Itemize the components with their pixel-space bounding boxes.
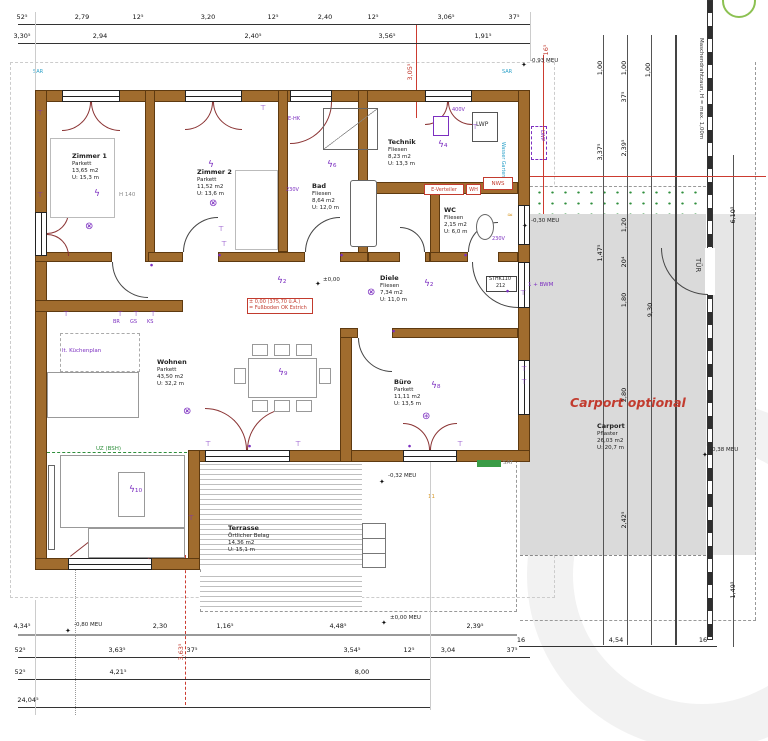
terrace-door-wohnen[interactable] [205,450,290,462]
room-perimeter: U: 6,0 m [444,229,467,235]
nws-box: NWS [483,177,513,190]
wh-box: WH [466,184,481,195]
room-name: WC [444,206,456,214]
dimension-label: 4,21⁵ [109,668,126,676]
dimension-label: 2,40 [318,13,332,21]
wall-niche-south-2 [425,252,430,262]
bolt-icon-2: ϟ₂ [277,277,287,286]
dimension-label: 1,16⁵ [216,622,233,630]
dimension-label: 2,42⁵ [620,511,628,528]
socket-icon: ⊤ [521,366,527,373]
socket-icon: ⊤ [295,441,301,448]
socket-icon: ⊤ [218,226,224,233]
chair [296,344,312,356]
dimension-label: 16 [517,636,525,644]
dimension-label: 1,20 [620,218,628,232]
room-name: Wohnen [157,358,187,366]
room-label-wc: WC Fliesen 2,15 m2 U: 6,0 m [444,206,467,236]
orange-wave-mark: ≈ [507,212,513,220]
room-label-diele: Diele Fliesen 7,34 m2 U: 11,0 m [380,274,407,304]
chair [296,400,312,412]
bolt-icon-4: ϟ₄ [438,141,448,150]
terrace-door-buero[interactable] [403,450,457,462]
room-area: 26,03 m2 [597,438,623,444]
gate-tuer-label: TÜR [693,258,701,272]
dimension-label: 3,30⁵ [13,32,30,40]
switch-dot-icon: ● [340,254,343,258]
terrace-decking-lower [200,572,362,608]
sat-label: SAT [503,460,513,466]
dimension-label: 16 [699,636,707,644]
room-floor: Fliesen [312,191,331,197]
dimension-label: 1,00 [596,61,604,75]
chair [234,368,246,384]
carport-line-1 [603,35,604,645]
room-floor: Pflaster [597,431,618,437]
room-area: 11,52 m2 [197,184,223,190]
dimension-label: 12⁵ [404,646,415,654]
dimension-label: 3,20 [201,13,215,21]
dimension-label: 2,30 [153,622,167,630]
guide-line [530,12,531,60]
lift-slide-door-hst[interactable] [68,558,152,570]
room-perimeter: U: 15,3 m [72,175,99,181]
wall-hall-2 [148,252,183,262]
wall-wc-south-2 [498,252,518,262]
socket-icon: ⊤ [457,441,463,448]
dimension-label: 37⁵ [620,92,628,103]
kitchen-counter [47,372,139,418]
socket-icon: ⊤ [117,311,123,318]
red-dashed-bottom [185,555,186,705]
dimension-label: 6,10⁵ [729,206,737,223]
switch-dot-icon: ● [248,445,251,449]
bolt-icon-8: ϟ₈ [431,382,441,391]
room-name: Terrasse [228,524,259,532]
switch-dot-icon: ● [218,254,221,258]
elevation-marker-icon: ✦ [702,452,708,459]
switch-dot-icon: ● [506,290,509,294]
dimension-label: 4,54 [609,636,623,644]
elevation-text: -0,32 MEU [388,473,416,479]
room-area: 14,36 m2 [228,540,254,546]
dimension-label: 3,56⁵ [378,32,395,40]
socket-icon: ⊤ [150,311,156,318]
gs-label: GS [130,320,137,326]
v400-label: 400V [452,108,465,114]
dimension-label-red: 3,63⁵ [177,643,185,660]
room-area: 13,65 m2 [72,168,98,174]
room-name: Diele [380,274,399,282]
red-line-horizontal [530,176,766,177]
room-floor: Parkett [157,367,176,373]
wasser-garten-label: Wasser Garten [500,142,505,177]
wardrobe-zimmer2 [235,170,278,250]
room-area: 2,15 m2 [444,222,467,228]
window-bad-north [290,90,332,102]
room-floor: Fliesen [388,147,407,153]
wall-wc-south-1 [430,252,468,262]
elevation-text: -0,80 MEU [74,622,102,628]
dimension-label: 2,80 [620,388,628,402]
wall-niche-south-1 [368,252,400,262]
room-label-zimmer2: Zimmer 2 Parkett 11,52 m2 U: 13,6 m [197,168,232,198]
elevation-marker-icon: ✦ [521,62,527,69]
room-floor: Fliesen [444,215,463,221]
elevation-marker-icon: ✦ [381,620,387,627]
room-perimeter: U: 11,0 m [380,297,407,303]
room-name: Büro [394,378,411,386]
room-label-bad: Bad Fliesen 8,64 m2 U: 12,0 m [312,182,339,212]
room-floor: Parkett [394,387,413,393]
dimension-label: 3,54⁵ [343,646,360,654]
window-zimmer2-north [185,90,242,102]
dimension-label: 4,48⁵ [329,622,346,630]
guide-line-dotted [75,570,76,715]
chair [274,344,290,356]
room-area: 8,23 m2 [388,154,411,160]
socket-icon: ⊤ [472,124,478,131]
shower-cabin [350,180,377,247]
dimension-label: 37⁵ [509,13,520,21]
dimension-label: 20⁴ [620,257,628,268]
room-name: Bad [312,182,326,190]
dimension-label: 37⁵ [507,646,518,654]
window-technik-north [425,90,472,102]
switch-dot-icon: ● [464,254,467,258]
dimension-label: 24,04⁵ [17,696,38,704]
br-label: BR [113,320,120,326]
sofa-chaise [88,528,185,558]
wall-ext-east [188,450,200,570]
wall-wohnen-buero [340,330,352,462]
wall-buero-north-1 [340,328,358,338]
socket-icon: ⊤ [37,192,43,199]
washer-technik [433,116,449,136]
dimension-label: 1,00 [620,61,628,75]
elevation-text: ±0,00 MEU [390,615,421,621]
room-name: Zimmer 2 [197,168,232,176]
room-area: 8,64 m2 [312,198,335,204]
wall-hall-3 [218,252,305,262]
e-verteiler-box: E-Verteiler [424,184,464,195]
room-perimeter: U: 13,6 m [197,191,224,197]
dimension-label: 3,63⁵ [108,646,125,654]
room-area: 11,11 m2 [394,394,420,400]
room-perimeter: U: 32,2 m [157,381,184,387]
elevation-text: -0,38 MEU [710,447,738,453]
room-floor: Parkett [197,177,216,183]
dimension-label: 52⁵ [15,646,26,654]
planting-strip [520,186,706,216]
room-floor: Parkett [72,161,91,167]
elevation-marker-icon: ✦ [522,223,528,230]
ehk-label: E-HK [288,117,300,123]
wall-hall-4 [340,252,368,262]
fence-label: Maschendrahtzaun, H = max. 1,00m [698,38,704,139]
room-name: Zimmer 1 [72,152,107,160]
sthk-line2: 212 [496,284,505,289]
shower-bad [323,108,378,150]
dimension-label: 1,00 [644,63,652,77]
elevation-marker-icon: ✦ [65,628,71,635]
dimension-label: 2,39⁵ [620,139,628,156]
carport-line-3 [651,35,652,645]
room-name: Carport [597,422,625,430]
dimension-label: 2,40⁵ [244,32,261,40]
socket-icon: ⊤ [221,241,227,248]
bolt-icon: ϟ [94,190,100,199]
chair [252,344,268,356]
socket-icon: ⊤ [205,441,211,448]
sar-label-east: SAR [502,70,512,76]
socket-icon: ⊤ [521,379,527,386]
fan-lamp-icon: ⊛ [422,412,430,422]
wall-kitchen-north [35,300,183,312]
level-zero-marker: ✦ [315,281,321,288]
guide-line [430,462,431,710]
room-perimeter: U: 15,1 m [228,547,255,553]
switch-dot-icon: ● [150,264,153,268]
carport-line-4 [675,35,677,645]
dimension-label: 52⁵ [15,668,26,676]
dimension-label: 8,00 [355,668,369,676]
uz-beam-line [47,452,187,453]
bwm-label: 1 + BWM [528,282,553,288]
dimension-label: 12⁵ [368,13,379,21]
room-label-buero: Büro Parkett 11,11 m2 U: 13,5 m [394,378,421,408]
room-floor: Fliesen [380,283,399,289]
bolt-icon-6: ϟ₆ [327,161,337,170]
dimension-label: 3,06⁵ [437,13,454,21]
kitchen-note: lt. Küchenplan [62,348,101,354]
elevation-text: -0,93 MEU [530,58,558,64]
right-dim-line [733,155,734,647]
fence-bar [707,0,713,640]
dimension-label: 1,91⁵ [474,32,491,40]
chair [319,368,331,384]
dimension-label: 2,94 [93,32,107,40]
dim-line-bottom-1 [18,634,517,636]
guide-line [35,12,36,90]
ceiling-lamp-icon: ⊗ [85,222,93,232]
dim-line-bottom-3 [18,679,430,680]
carport-bottom-dashed [520,555,706,556]
chair [274,400,290,412]
dimension-label: 2,39⁵ [466,622,483,630]
room-perimeter: U: 20,7 m [597,445,624,451]
window-zimmer1-west [35,212,47,256]
level-line-2: = Fußboden OK Estrich [249,305,307,311]
dimension-label: 37⁵ [187,646,198,654]
bolt-icon-9: ϟ₉ [278,369,288,378]
socket-icon: ⊤ [63,311,69,318]
dimension-label: 1,80 [620,293,628,307]
room-area: 43,50 m2 [157,374,183,380]
site-boundary-dashed-bottom [520,620,756,621]
elevation-text: -0,30 MEU [531,218,559,224]
dim-line-top-2 [18,43,530,44]
elevation-marker-icon: ✦ [379,479,385,486]
dim-line-bottom-4 [18,707,430,708]
v230-wc-label: 230V [492,237,505,243]
dimension-label: 52⁵ [17,13,28,21]
room-perimeter: U: 13,3 m [388,161,415,167]
switch-dot-icon: ● [392,330,395,334]
v230-bad-label: 230V [286,188,299,194]
window-zimmer1-north [62,90,120,102]
room-label-terrasse: Terrasse Örtlicher Belag 14,36 m2 U: 15,… [228,524,269,554]
socket-icon: ⊤ [133,311,139,318]
ceiling-lamp-icon: ⊗ [183,407,191,417]
socket-icon: ⊤ [260,105,266,112]
bolt-icon: ϟ [208,161,214,170]
tv-board [48,465,55,550]
dining-table [248,358,317,398]
logo-arc [722,0,756,18]
dimension-label-red: 3,05⁵ [406,63,414,80]
terrace-steps [362,523,386,568]
floorplan-canvas: TÜR Maschendrahtzaun, H = max. 1,00m [0,0,768,741]
level-reference-box: ± 0,00 (375,70 ü.A.) = Fußboden OK Estri… [247,298,313,314]
room-name: Technik [388,138,416,146]
dimension-label: 12⁵ [268,13,279,21]
dim-line-bottom-2 [18,657,530,658]
chair [252,400,268,412]
dimension-label: 4,34⁵ [13,622,30,630]
wall-zimmer2-east [278,90,288,252]
room-label-wohnen: Wohnen Parkett 43,50 m2 U: 32,2 m [157,358,187,388]
dimension-label: 9,30 [646,303,654,317]
room-area: 7,34 m2 [380,290,403,296]
ks-label: KS [147,320,153,326]
sat-bar [477,460,501,467]
switch-dot-icon: ● [408,445,411,449]
ceiling-lamp-icon: ⊗ [367,288,375,298]
room-floor: Örtlicher Belag [228,533,269,539]
sthk-line1: STHK110 [489,277,511,282]
dimension-label: 1,47⁵ [596,244,604,261]
room-perimeter: U: 13,5 m [394,401,421,407]
uz-beam-label: UZ (BSH) [96,446,121,452]
socket-icon: ⊤ [188,515,194,522]
dimension-label: 1,49⁵ [729,581,737,598]
carport-line-2 [627,35,628,645]
bolt-icon-2: ϟ₂ [424,280,434,289]
socket-icon: ⊤ [520,290,526,297]
bolt-icon-10: ϟ₁₀ [129,486,142,495]
dimension-label: 3,04 [441,646,455,654]
dimension-label: 2,79 [75,13,89,21]
dimension-label-red: 16⁵ [542,45,550,56]
wall-west [35,90,47,570]
carport-east-strip [712,214,756,555]
lwp-outdoor-label: LWP [539,130,545,141]
wall-zimmer1-east [145,90,155,262]
level-zero-text: ±0,00 [323,277,340,283]
wall-buero-north-2 [392,328,518,338]
room-label-technik: Technik Fliesen 8,23 m2 U: 13,3 m [388,138,416,168]
h140-label: H 140 [119,192,135,198]
red-axis-top [416,25,417,118]
ceiling-lamp-icon: ⊗ [209,199,217,209]
dim-line-top-1 [18,24,530,25]
socket-icon: ⊤ [37,110,43,117]
dimension-label: 3,37⁵ [596,143,604,160]
room-perimeter: U: 12,0 m [312,205,339,211]
dim-line-carport-bottom [519,646,717,647]
dimension-label: 12⁵ [133,13,144,21]
terrace-decking [200,455,362,568]
site-boundary-dashed-right [755,62,756,620]
room-label-zimmer1: Zimmer 1 Parkett 13,65 m2 U: 15,3 m [72,152,107,182]
room-label-carport: Carport Pflaster 26,03 m2 U: 20,7 m [597,422,625,452]
